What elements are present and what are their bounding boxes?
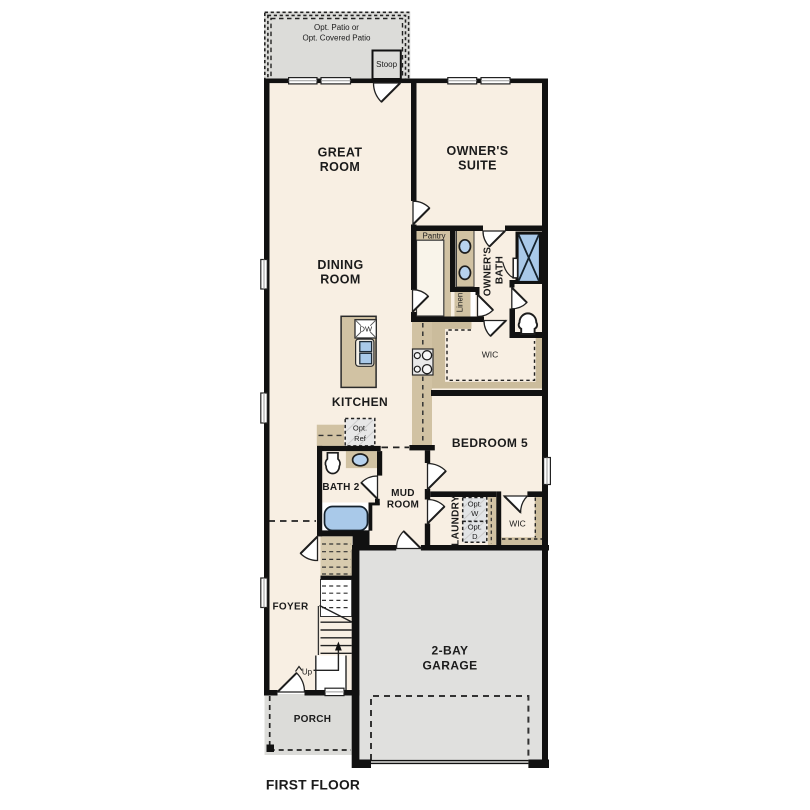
svg-text:Opt.: Opt.	[468, 500, 482, 509]
svg-text:KITCHEN: KITCHEN	[332, 395, 388, 409]
svg-text:Linen: Linen	[456, 293, 465, 313]
svg-text:SUITE: SUITE	[458, 159, 497, 173]
svg-text:BATH 2: BATH 2	[322, 482, 359, 493]
svg-text:Opt. Covered Patio: Opt. Covered Patio	[302, 34, 371, 43]
svg-text:WIC: WIC	[509, 519, 526, 529]
svg-text:ROOM: ROOM	[387, 500, 419, 511]
svg-text:WIC: WIC	[482, 350, 499, 360]
svg-text:DW: DW	[360, 325, 373, 334]
svg-text:Stoop: Stoop	[376, 60, 397, 69]
svg-text:D: D	[472, 532, 478, 541]
svg-text:Ref: Ref	[354, 434, 367, 443]
svg-text:MUD: MUD	[391, 488, 415, 499]
svg-text:Pantry: Pantry	[422, 232, 445, 241]
svg-text:OWNER'S: OWNER'S	[446, 144, 508, 158]
svg-text:DINING: DINING	[317, 258, 363, 272]
svg-text:FIRST FLOOR: FIRST FLOOR	[266, 778, 360, 793]
svg-text:W: W	[471, 509, 479, 518]
svg-text:BATH: BATH	[495, 256, 506, 284]
svg-text:GARAGE: GARAGE	[422, 659, 477, 673]
svg-text:ROOM: ROOM	[320, 273, 361, 287]
svg-text:LAUNDRY: LAUNDRY	[450, 495, 461, 546]
svg-text:Opt. Patio or: Opt. Patio or	[314, 23, 359, 32]
svg-text:OWNER'S: OWNER'S	[483, 247, 494, 297]
svg-text:ROOM: ROOM	[320, 160, 361, 174]
svg-text:Opt.: Opt.	[353, 424, 367, 433]
svg-text:BEDROOM 5: BEDROOM 5	[452, 436, 528, 450]
svg-text:Opt.: Opt.	[468, 522, 482, 531]
svg-text:PORCH: PORCH	[294, 714, 332, 725]
svg-text:FOYER: FOYER	[273, 602, 309, 613]
svg-text:GREAT: GREAT	[318, 146, 363, 160]
svg-text:2-BAY: 2-BAY	[432, 644, 469, 658]
svg-text:Up: Up	[302, 668, 313, 677]
